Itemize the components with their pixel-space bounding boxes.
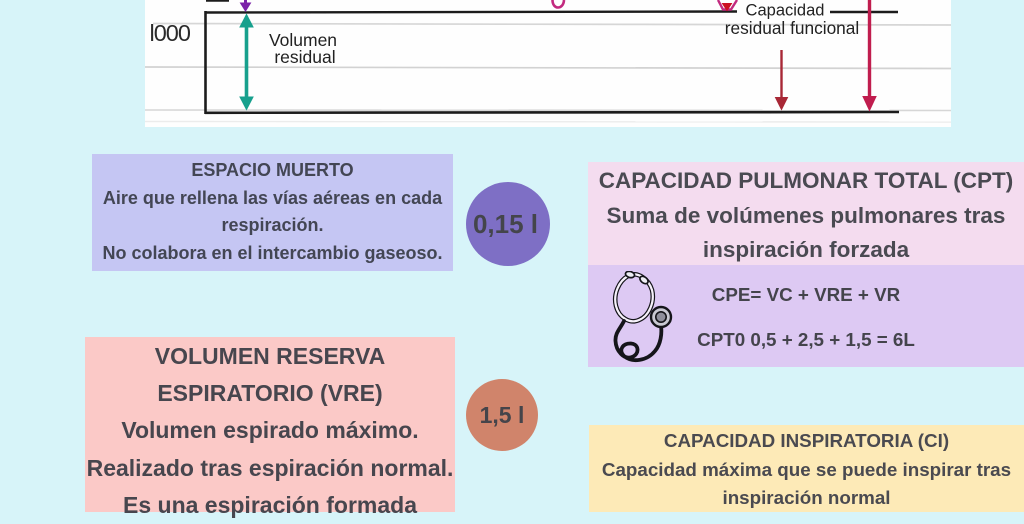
svg-text:l000: l000 xyxy=(150,20,191,46)
svg-text:residual: residual xyxy=(274,47,335,67)
svg-text:residual funcional: residual funcional xyxy=(725,18,860,38)
svg-text:Capacidad: Capacidad xyxy=(746,2,825,20)
